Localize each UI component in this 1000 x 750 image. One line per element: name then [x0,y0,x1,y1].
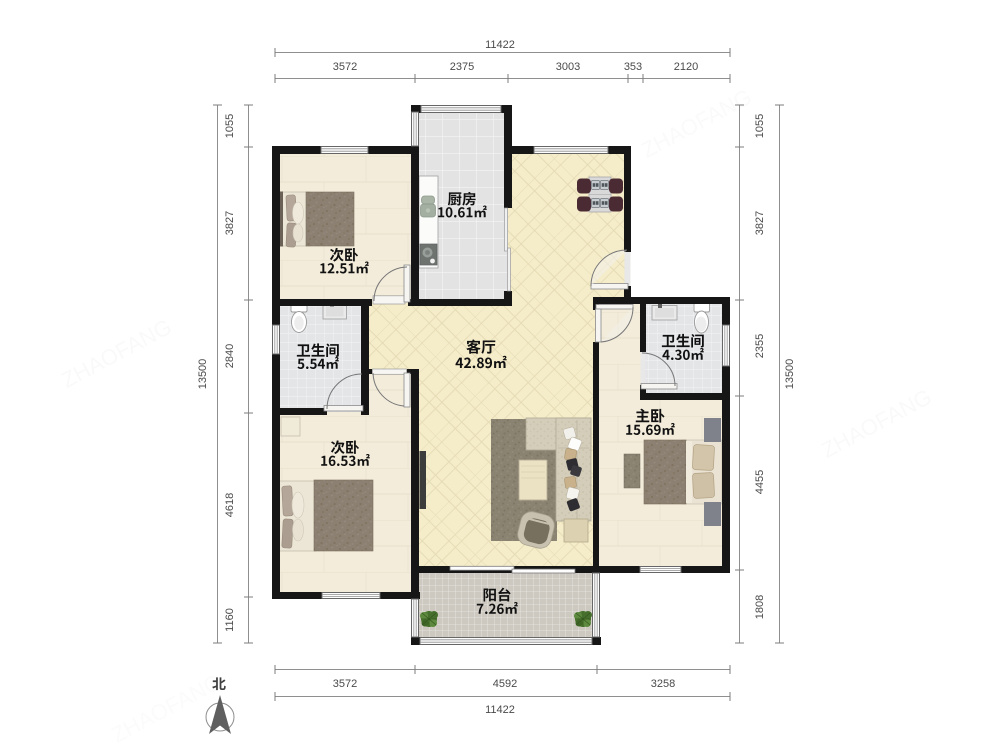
svg-text:1055: 1055 [224,114,236,138]
svg-text:3827: 3827 [224,211,236,235]
svg-text:3003: 3003 [556,61,580,73]
svg-text:4618: 4618 [224,493,236,517]
svg-text:1055: 1055 [754,114,766,138]
svg-text:2120: 2120 [674,61,698,73]
svg-text:2840: 2840 [224,344,236,368]
svg-text:3258: 3258 [651,678,675,690]
svg-text:11422: 11422 [485,704,515,716]
svg-text:11422: 11422 [485,39,515,51]
svg-text:13500: 13500 [784,359,796,390]
svg-text:4592: 4592 [493,678,517,690]
svg-text:3827: 3827 [754,211,766,235]
svg-text:353: 353 [624,61,642,73]
svg-text:3572: 3572 [333,61,357,73]
svg-text:3572: 3572 [333,678,357,690]
svg-text:2355: 2355 [754,334,766,358]
svg-text:1808: 1808 [754,595,766,619]
svg-text:13500: 13500 [197,359,209,390]
svg-text:2375: 2375 [450,61,474,73]
svg-text:4455: 4455 [754,470,766,494]
svg-text:1160: 1160 [224,608,236,632]
